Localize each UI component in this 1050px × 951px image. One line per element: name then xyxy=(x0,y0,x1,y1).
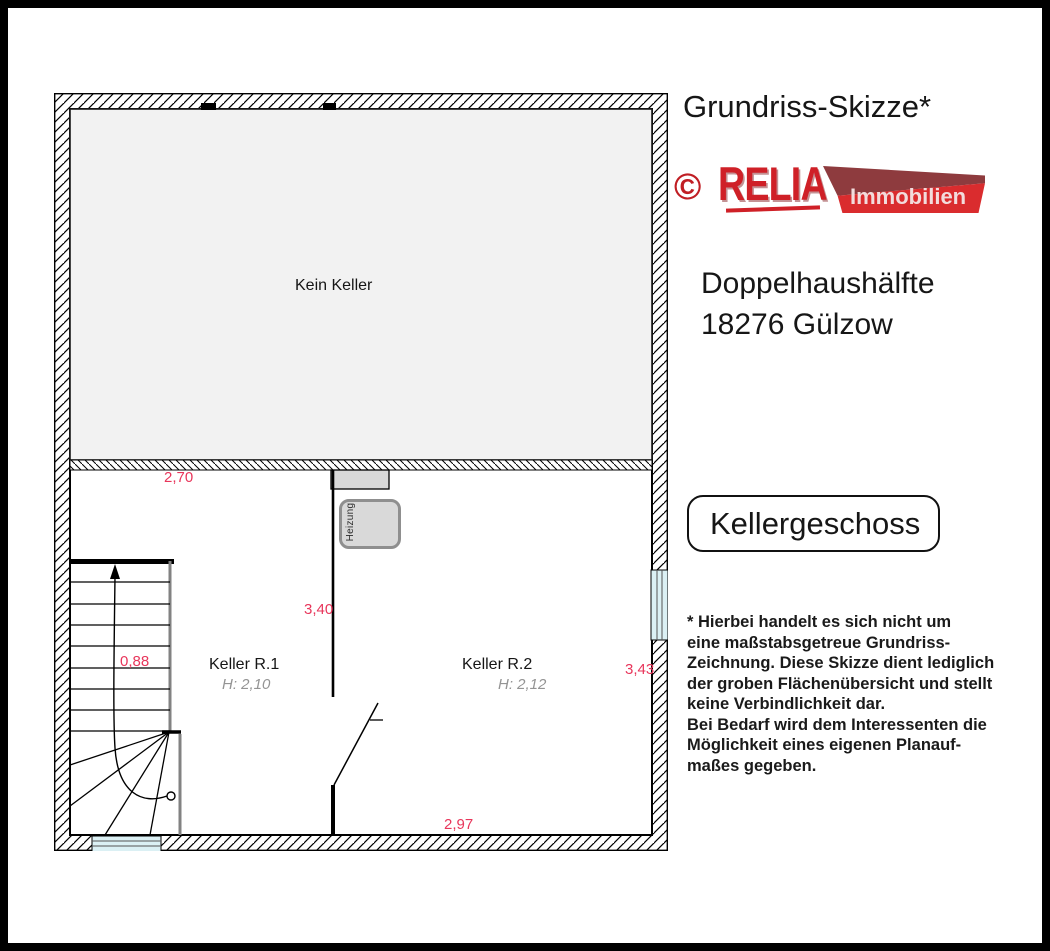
logo-banner: Immobilien xyxy=(823,165,985,213)
staircase xyxy=(70,559,181,835)
logo-suffix-text: Immobilien xyxy=(850,184,966,210)
property-type: Doppelhaushälfte xyxy=(701,267,935,301)
floor-plan-canvas xyxy=(54,93,668,851)
floor-plan-drawing xyxy=(54,93,668,851)
divider-wall xyxy=(70,460,652,470)
dim-stair-width: 0,88 xyxy=(120,653,149,670)
floor-label: Kellergeschoss xyxy=(689,506,920,542)
copyright-icon: © xyxy=(674,166,701,208)
relia-logo: © RELIA Immobilien xyxy=(674,162,986,220)
window-bottom xyxy=(92,836,161,851)
label-kein-keller: Kein Keller xyxy=(295,277,372,295)
floor-label-box: Kellergeschoss xyxy=(687,495,940,552)
label-keller-r1-height: H: 2,10 xyxy=(222,676,270,693)
dim-top-width: 2,70 xyxy=(164,469,193,486)
chimney-block xyxy=(331,470,389,489)
label-heizung: Heizung xyxy=(345,500,356,544)
label-keller-r1: Keller R.1 xyxy=(209,656,279,674)
floorplan-sheet: Kein Keller 2,70 3,40 0,88 3,43 2,97 Kel… xyxy=(0,0,1050,951)
logo-brand-text: RELIA xyxy=(718,156,827,211)
dim-bottom-width: 2,97 xyxy=(444,816,473,833)
dim-right-depth: 3,43 xyxy=(625,661,654,678)
page-title: Grundriss-Skizze* xyxy=(683,89,931,125)
stair-walkline xyxy=(110,564,175,800)
property-location: 18276 Gülzow xyxy=(701,308,893,342)
disclaimer-text: * Hierbei handelt es sich nicht um eine … xyxy=(687,612,1002,776)
door-swing xyxy=(334,703,383,785)
label-keller-r2: Keller R.2 xyxy=(462,656,532,674)
dim-r2-height: 3,40 xyxy=(304,601,333,618)
heating-unit: Heizung xyxy=(339,499,401,549)
label-keller-r2-height: H: 2,12 xyxy=(498,676,546,693)
window-right xyxy=(651,570,668,640)
